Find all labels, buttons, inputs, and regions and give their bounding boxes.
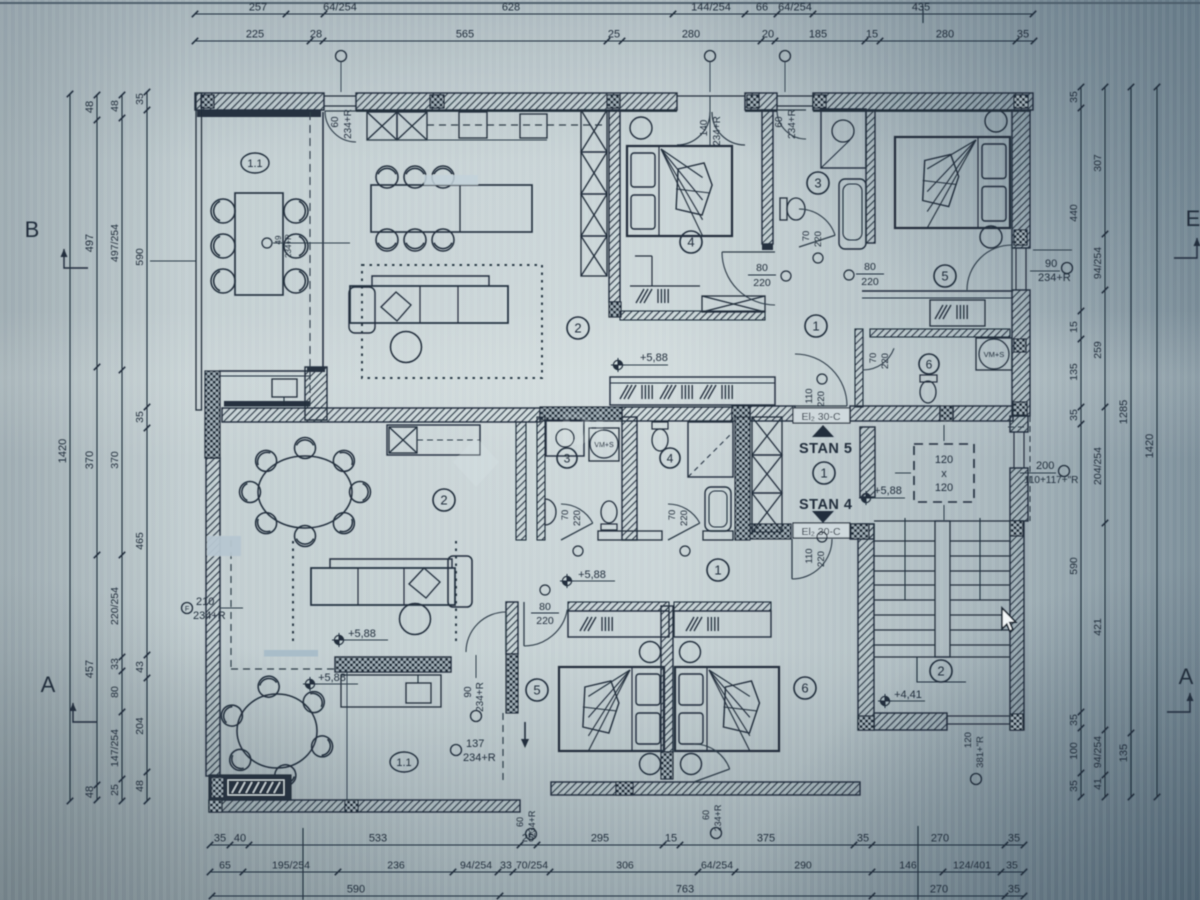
svg-text:533: 533 [369,833,387,845]
svg-text:60: 60 [701,810,711,820]
svg-text:4: 4 [667,451,674,465]
svg-text:70: 70 [868,353,879,364]
svg-text:90: 90 [463,686,474,698]
svg-text:220: 220 [816,391,827,407]
svg-text:147/254: 147/254 [109,729,121,767]
svg-text:5: 5 [941,269,948,284]
svg-text:40: 40 [234,833,246,845]
svg-text:440: 440 [1068,204,1080,222]
svg-text:270: 270 [930,884,948,896]
svg-text:1.1: 1.1 [247,158,262,170]
svg-text:220: 220 [536,615,554,627]
svg-text:220: 220 [880,353,891,369]
svg-text:234+R: 234+R [787,109,798,139]
svg-text:234+R: 234+R [343,109,354,139]
svg-text:48: 48 [134,780,146,792]
svg-text:590: 590 [134,248,146,266]
svg-text:60: 60 [330,116,341,128]
svg-text:2: 2 [937,664,944,679]
svg-text:497: 497 [84,234,96,252]
svg-text:5: 5 [533,683,540,698]
svg-text:+5,88: +5,88 [640,352,668,364]
svg-text:STAN 4: STAN 4 [799,497,853,513]
svg-text:2: 2 [440,493,447,508]
svg-text:x: x [941,468,947,480]
svg-text:33: 33 [109,658,121,670]
svg-text:+5,88: +5,88 [318,672,346,684]
svg-text:220: 220 [861,276,879,288]
svg-text:35: 35 [1068,91,1080,103]
svg-text:+5,88: +5,88 [348,628,376,640]
svg-text:220/254: 220/254 [109,587,121,625]
svg-text:280: 280 [936,29,954,41]
svg-text:+5,88: +5,88 [874,485,902,497]
svg-text:375: 375 [757,833,775,845]
svg-text:220: 220 [816,551,827,567]
svg-text:66: 66 [756,2,768,14]
svg-text:370: 370 [109,451,121,469]
svg-text:295: 295 [591,833,609,845]
svg-text:146: 146 [899,860,917,872]
svg-text:457: 457 [84,660,96,678]
svg-text:80: 80 [109,686,121,698]
svg-text:+5,88: +5,88 [578,569,606,581]
svg-text:590: 590 [347,884,365,896]
svg-text:1: 1 [820,466,827,481]
svg-text:6: 6 [801,681,808,696]
svg-text:A: A [41,672,56,697]
svg-text:El₂ 30-C: El₂ 30-C [801,411,841,423]
svg-text:763: 763 [676,884,694,896]
svg-text:35: 35 [134,411,146,423]
svg-text:35: 35 [1006,860,1018,872]
svg-text:28: 28 [310,29,322,41]
svg-text:6: 6 [926,357,933,371]
svg-text:15: 15 [866,29,878,41]
svg-text:234+R: 234+R [463,752,496,764]
svg-text:15: 15 [665,833,677,845]
svg-text:+4,41: +4,41 [894,689,922,701]
svg-text:4: 4 [687,235,694,250]
svg-text:590: 590 [1068,557,1080,575]
svg-text:3: 3 [814,176,821,191]
svg-text:124/401: 124/401 [953,860,991,872]
svg-text:120: 120 [935,482,953,494]
svg-text:33: 33 [500,860,512,872]
svg-text:135: 135 [1118,744,1130,762]
svg-text:370: 370 [84,451,96,469]
svg-text:565: 565 [456,29,474,41]
svg-text:200: 200 [1036,460,1054,472]
svg-text:234+R: 234+R [713,804,723,831]
svg-text:110+117+"R: 110+117+"R [1024,475,1078,486]
svg-text:Di: Di [560,403,606,455]
svg-text:1.1: 1.1 [396,757,411,769]
svg-text:41: 41 [1092,778,1104,790]
svg-text:120: 120 [963,732,974,748]
svg-text:35: 35 [857,833,869,845]
svg-text:100: 100 [1068,742,1080,760]
svg-text:421: 421 [1092,618,1104,636]
svg-text:185: 185 [809,29,827,41]
svg-text:110: 110 [804,388,815,403]
svg-text:60: 60 [515,817,525,827]
svg-text:80: 80 [539,601,551,613]
svg-text:35: 35 [1008,833,1020,845]
svg-text:43: 43 [134,661,146,673]
svg-text:64/254: 64/254 [323,2,357,14]
svg-text:204/254: 204/254 [1092,447,1104,485]
svg-text:94/254: 94/254 [1092,247,1104,279]
svg-text:204: 204 [134,717,146,735]
svg-text:15: 15 [1068,321,1080,333]
svg-text:220: 220 [753,277,771,289]
svg-text:90: 90 [1045,258,1057,270]
svg-text:80: 80 [756,262,768,274]
svg-text:49: 49 [274,235,283,244]
svg-text:257: 257 [249,2,267,14]
svg-text:1: 1 [714,563,721,578]
svg-text:25: 25 [608,29,620,41]
svg-text:225: 225 [246,29,264,41]
svg-text:234+R: 234+R [284,234,293,258]
svg-text:STAN 5: STAN 5 [799,441,853,457]
svg-text:E: E [1186,206,1200,231]
svg-text:48: 48 [109,100,121,112]
svg-text:280: 280 [682,29,700,41]
svg-text:306: 306 [616,860,634,872]
svg-text:1285: 1285 [1118,400,1130,424]
svg-text:64/254: 64/254 [701,860,733,872]
svg-text:48: 48 [84,101,96,113]
svg-text:307: 307 [1092,154,1104,172]
svg-text:435: 435 [912,2,930,14]
svg-text:25: 25 [109,784,121,796]
svg-text:195/254: 195/254 [272,860,310,872]
svg-text:A: A [1179,664,1194,689]
svg-text:120: 120 [935,454,953,466]
svg-text:137: 137 [466,738,484,750]
svg-text:210: 210 [196,596,214,608]
svg-text:F: F [185,606,189,613]
svg-text:70: 70 [801,231,812,242]
svg-text:497/254: 497/254 [109,224,121,262]
svg-text:48: 48 [84,786,96,798]
svg-text:2: 2 [574,321,581,336]
svg-text:465: 465 [134,532,146,550]
svg-text:70: 70 [667,510,678,521]
svg-text:35: 35 [1008,884,1020,896]
svg-text:236: 236 [387,860,405,872]
svg-text:35: 35 [214,833,226,845]
svg-text:20: 20 [762,29,774,41]
svg-text:1420: 1420 [1144,434,1156,458]
svg-text:220: 220 [572,510,583,526]
svg-text:35: 35 [1068,714,1080,726]
svg-text:VM+S: VM+S [984,350,1005,359]
svg-text:135: 135 [1068,363,1080,381]
svg-text:234+R: 234+R [527,810,537,837]
svg-text:110: 110 [804,548,815,563]
svg-text:381+"R: 381+"R [975,736,986,768]
svg-text:144/254: 144/254 [691,2,731,14]
svg-text:234+R: 234+R [475,682,486,712]
svg-text:70/254: 70/254 [516,860,548,872]
svg-text:628: 628 [502,2,520,14]
svg-text:290: 290 [794,860,812,872]
svg-text:270: 270 [931,833,949,845]
svg-text:35: 35 [1068,780,1080,792]
svg-text:1420: 1420 [57,439,69,463]
svg-text:234+R: 234+R [193,610,226,622]
svg-text:94/254: 94/254 [1092,736,1104,768]
svg-text:259: 259 [1092,341,1104,359]
svg-text:35: 35 [1017,29,1029,41]
svg-text:B: B [25,217,40,242]
svg-text:80: 80 [864,261,876,273]
svg-text:70: 70 [560,510,571,521]
svg-text:220: 220 [813,231,824,247]
svg-text:1: 1 [812,319,819,334]
svg-text:35: 35 [134,93,146,105]
svg-text:64/254: 64/254 [778,2,812,14]
svg-text:220: 220 [679,510,690,526]
svg-text:65: 65 [219,860,231,872]
svg-text:35: 35 [1068,409,1080,421]
svg-text:94/254: 94/254 [460,860,492,872]
